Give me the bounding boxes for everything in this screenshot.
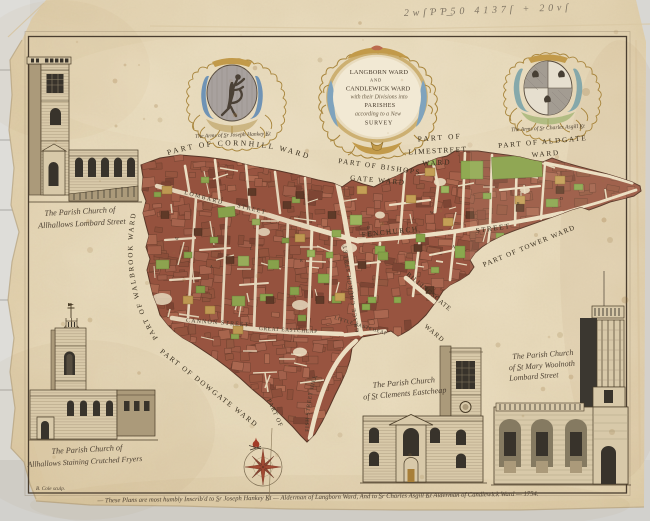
svg-text:A: A: [210, 264, 213, 269]
svg-text:CANDLEWICK WARD: CANDLEWICK WARD: [346, 86, 411, 93]
svg-text:D: D: [560, 196, 563, 201]
svg-text:WARD: WARD: [422, 157, 451, 168]
svg-text:B. Cole sculp.: B. Cole sculp.: [36, 486, 65, 492]
svg-text:B: B: [300, 258, 303, 263]
svg-text:R: R: [517, 201, 520, 206]
svg-text:AND: AND: [370, 78, 382, 83]
svg-text:with their Divisions into: with their Divisions into: [350, 95, 407, 101]
svg-text:according to a New: according to a New: [355, 112, 401, 118]
svg-text:LANGBORN WARD: LANGBORN WARD: [350, 69, 409, 76]
svg-text:PARISHES: PARISHES: [365, 103, 396, 109]
svg-text:W: W: [430, 210, 434, 215]
svg-text:W: W: [175, 236, 179, 241]
svg-text:D: D: [367, 225, 370, 230]
svg-text:SURVEY: SURVEY: [365, 121, 393, 127]
svg-text:A: A: [452, 244, 455, 249]
